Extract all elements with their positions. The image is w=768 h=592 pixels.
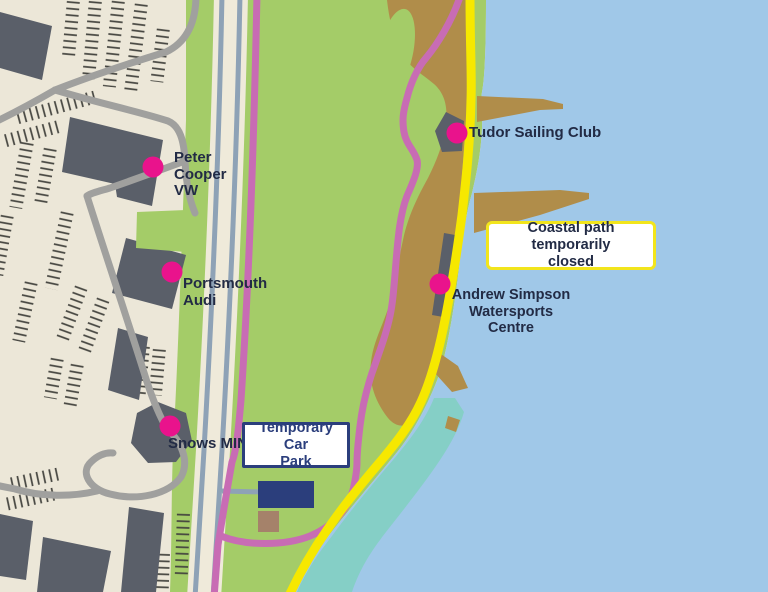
roadside-verge — [136, 210, 186, 252]
temporary-car-park-box: Temporary Car Park — [242, 422, 350, 468]
peter-cooper-marker-dot — [143, 157, 164, 178]
watersports-centre-label: Andrew Simpson Watersports Centre — [446, 287, 576, 337]
car-park-surface — [258, 481, 314, 508]
portsmouth-audi-label: Portsmouth Audi — [183, 276, 267, 309]
portsmouth-audi-marker-dot — [162, 262, 183, 283]
snows-mini-label: Snows MINI — [168, 436, 252, 453]
tudor-sailing-club-marker-dot — [447, 123, 468, 144]
coastal-path-closed-notice: Coastal path temporarily closed — [486, 221, 656, 270]
sand-patch — [258, 511, 279, 532]
tudor-sailing-club-label: Tudor Sailing Club — [469, 125, 601, 142]
map-canvas — [0, 0, 768, 592]
snows-mini-marker-dot — [160, 416, 181, 437]
peter-cooper-label: Peter Cooper VW — [174, 150, 227, 200]
coastal-map: Peter Cooper VW Portsmouth Audi Snows MI… — [0, 0, 768, 592]
